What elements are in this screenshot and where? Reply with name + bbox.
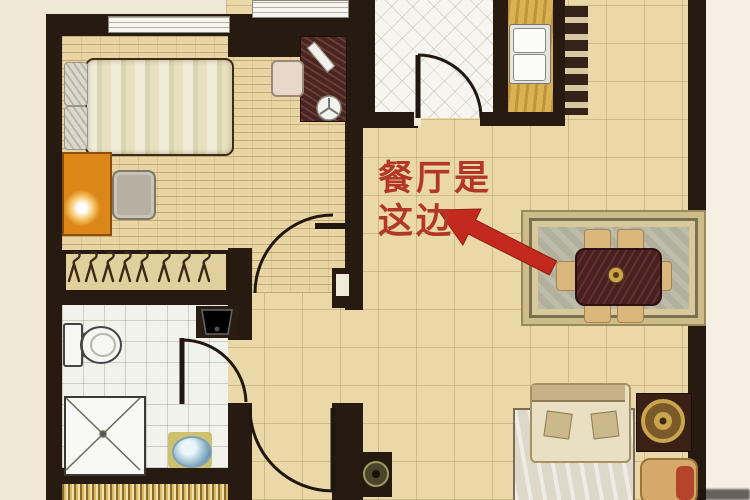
- bed: [85, 58, 234, 156]
- door-jamb-marker-dining: [336, 274, 349, 296]
- sink-basin-top: [513, 28, 546, 53]
- desk-chair: [271, 60, 304, 97]
- armchair-throw: [676, 466, 694, 500]
- wash-basin: [172, 436, 212, 468]
- radiator-shelf: [565, 6, 588, 115]
- side-table: [636, 393, 692, 452]
- watermark-smudge: [698, 489, 750, 500]
- sofa-pillow-left: [543, 410, 572, 439]
- shower-tray: [64, 396, 146, 476]
- wall-bathroom-right-lower: [228, 403, 252, 500]
- lamp-glow: [64, 190, 100, 226]
- wall-entry-column: [332, 403, 363, 500]
- window-bay-top: [252, 0, 349, 18]
- bed-pillow-bottom: [64, 106, 88, 150]
- wall-kitchen-left: [360, 0, 375, 128]
- sofa-backrest: [532, 385, 625, 402]
- wall-left: [46, 14, 62, 500]
- dining-table: [575, 248, 662, 306]
- entry-decor-box: [360, 452, 392, 497]
- annotation-text: 餐厅是 这边: [378, 158, 538, 243]
- balcony-fringe-strip: [62, 484, 230, 500]
- floor-plan-image: 餐厅是 这边: [0, 0, 750, 500]
- wall-kitchen-right: [553, 0, 565, 118]
- wall-kitchen-bottom-right: [480, 112, 565, 126]
- door-jamb-marker-kitchen: [414, 112, 421, 126]
- annotation-line-1: 餐厅是: [378, 158, 538, 201]
- wall-kitchen-inner: [493, 0, 508, 118]
- kitchen-floor: [375, 0, 493, 118]
- window-bedroom-top: [108, 16, 230, 33]
- bedroom-pouf: [112, 170, 156, 220]
- page-margin-right: [706, 0, 750, 500]
- bed-pillow-top: [64, 62, 88, 106]
- wall-kitchen-bottom-left: [360, 112, 418, 128]
- sofa-pillow-right: [591, 411, 620, 440]
- closet: [62, 250, 230, 294]
- bathroom-sink-frame: [196, 306, 238, 338]
- sink-basin-bottom: [513, 54, 546, 81]
- wall-top-thick-block: [228, 30, 302, 57]
- annotation-line-2: 这边: [378, 201, 538, 244]
